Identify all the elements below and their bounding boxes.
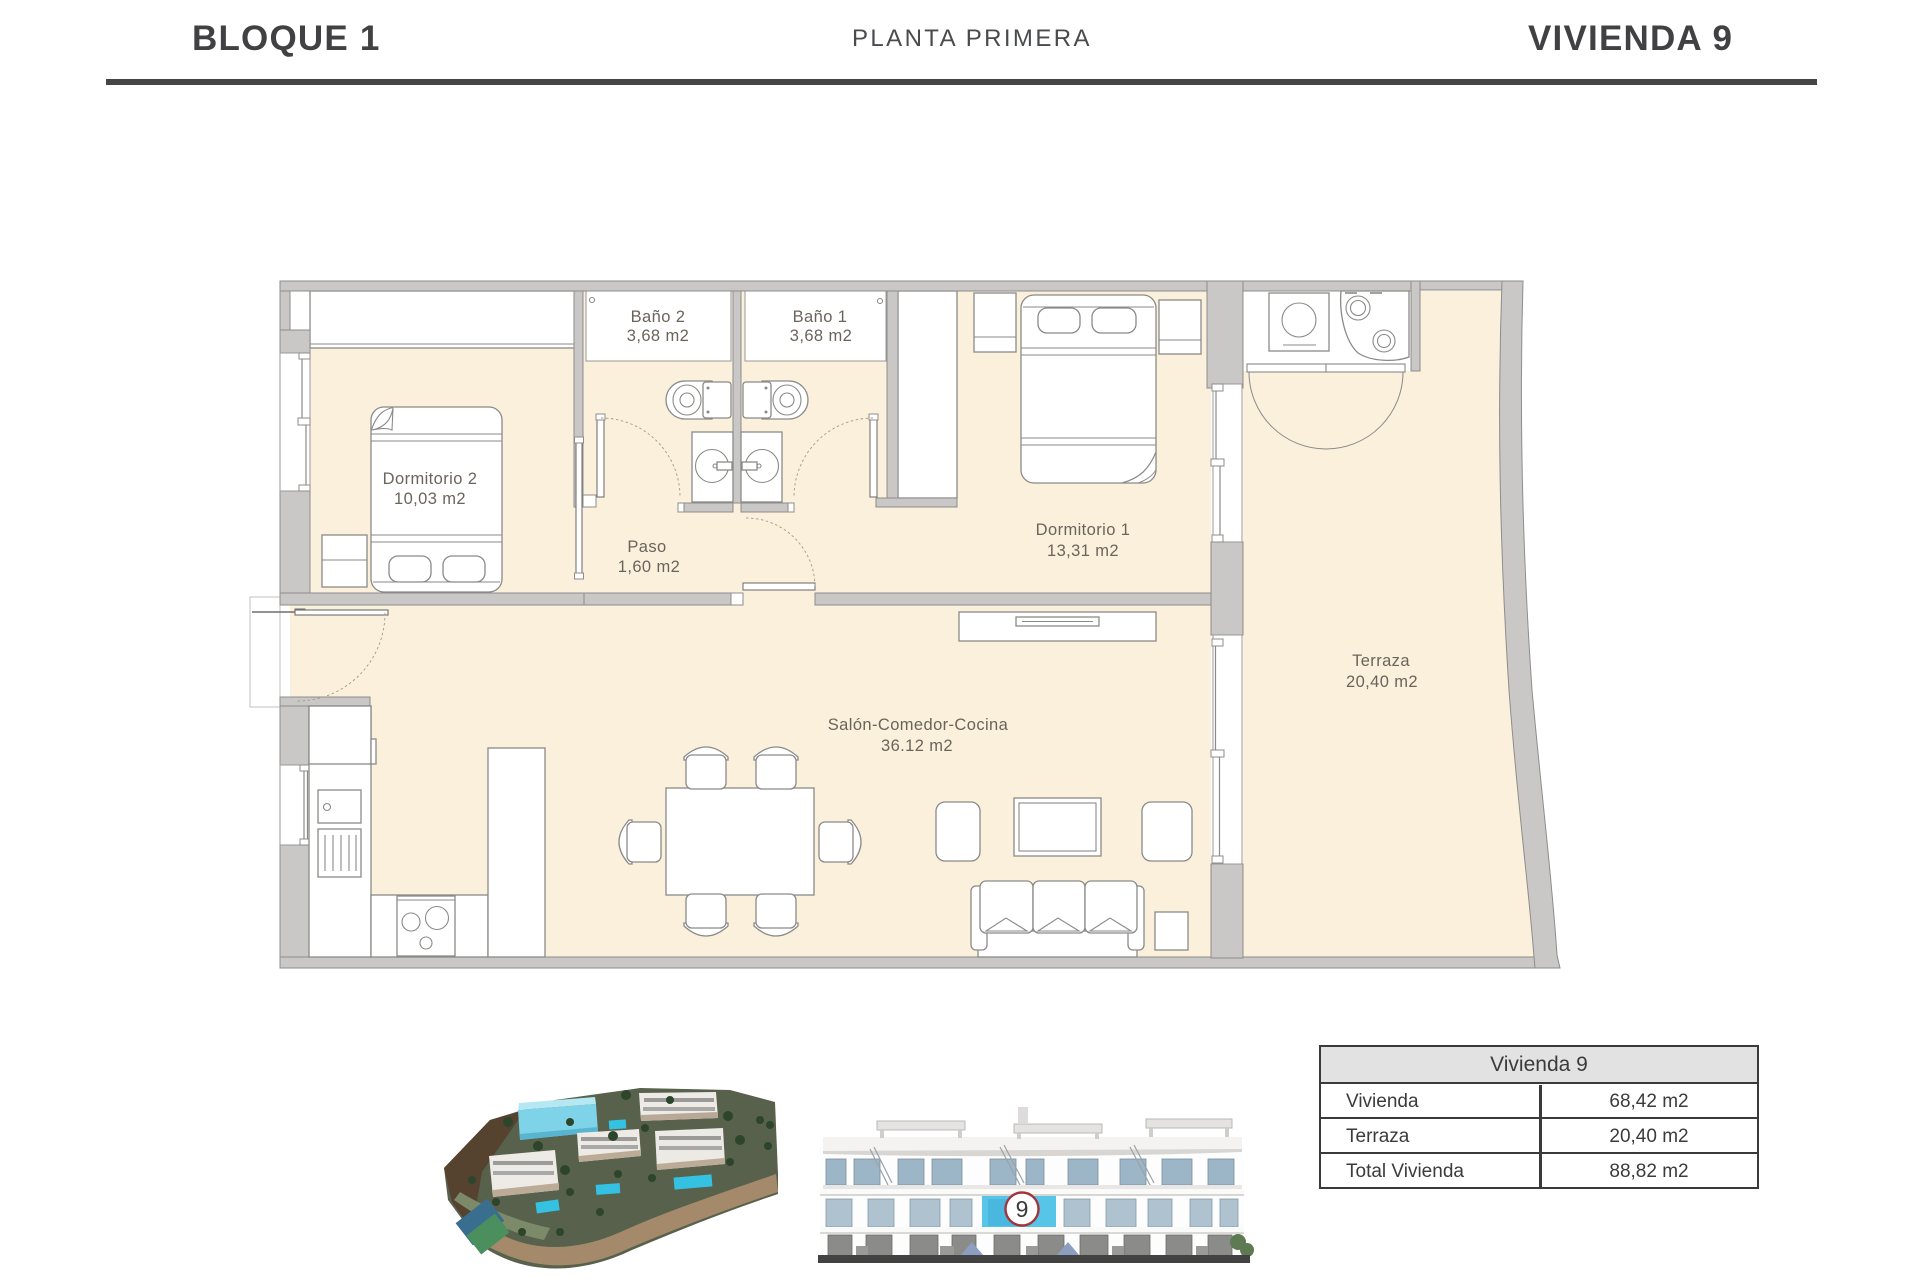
svg-text:Terraza: Terraza bbox=[1352, 652, 1410, 670]
svg-text:Dormitorio 2: Dormitorio 2 bbox=[383, 470, 478, 488]
svg-text:Dormitorio 1: Dormitorio 1 bbox=[1036, 521, 1131, 539]
svg-text:Baño 1: Baño 1 bbox=[793, 308, 848, 326]
svg-text:10,03 m2: 10,03 m2 bbox=[394, 490, 466, 508]
svg-text:Paso: Paso bbox=[627, 538, 666, 556]
svg-text:20,40 m2: 20,40 m2 bbox=[1346, 673, 1418, 691]
svg-text:Salón-Comedor-Cocina: Salón-Comedor-Cocina bbox=[828, 716, 1009, 734]
svg-text:1,60 m2: 1,60 m2 bbox=[618, 558, 680, 576]
svg-text:36.12 m2: 36.12 m2 bbox=[881, 737, 953, 755]
svg-text:9: 9 bbox=[1016, 1196, 1029, 1222]
svg-text:13,31 m2: 13,31 m2 bbox=[1047, 542, 1119, 560]
svg-text:3,68 m2: 3,68 m2 bbox=[790, 327, 852, 345]
svg-text:Baño 2: Baño 2 bbox=[631, 308, 686, 326]
svg-text:3,68 m2: 3,68 m2 bbox=[627, 327, 689, 345]
